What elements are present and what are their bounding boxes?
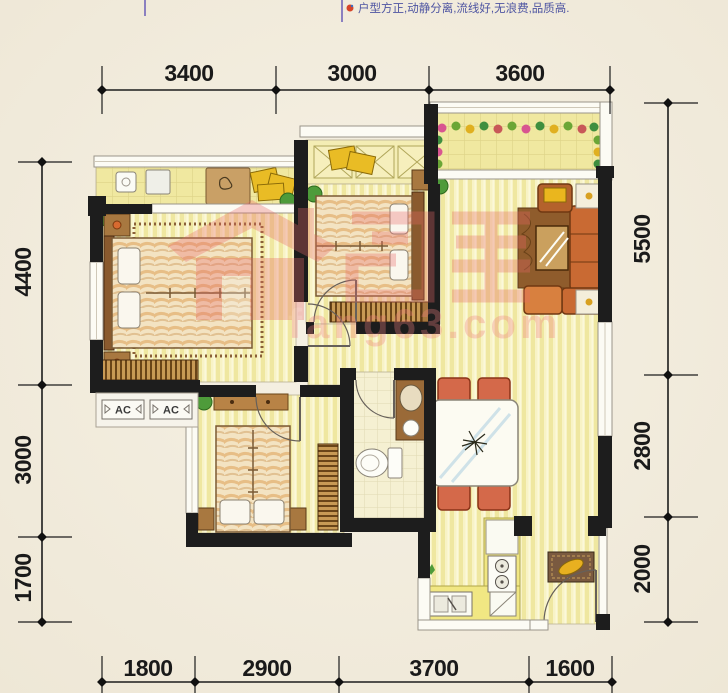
dim-label: 1700 (10, 553, 36, 602)
tagline-bullet-icon (351, 5, 353, 7)
window (300, 126, 432, 137)
dim-label: 2800 (629, 421, 655, 470)
living-balcony-floor (432, 112, 604, 172)
sink-bowl (452, 596, 466, 612)
washbasin (403, 420, 419, 436)
bedroom-bench (102, 360, 198, 380)
pillow (118, 292, 140, 328)
vanity-mirror (400, 385, 422, 411)
tagline-text: 户型方正,动静分离,流线好,无浪费,品质高. (358, 1, 569, 15)
dim-label: 3700 (409, 655, 458, 681)
floorplan-canvas: 户型方正,动静分离,流线好,无浪费,品质高. (0, 0, 728, 693)
window (152, 204, 302, 213)
foyer (548, 552, 594, 582)
dim-label: 1600 (545, 655, 594, 681)
gold-throw (544, 188, 566, 202)
ac-label-1: AC (115, 405, 131, 417)
wardrobe-tall (318, 444, 338, 530)
pillow (254, 500, 284, 524)
dresser-knob (230, 400, 234, 404)
dim-label: 2000 (629, 544, 655, 593)
nightstand (198, 508, 214, 530)
nightstand (290, 508, 306, 530)
dim-label: 3000 (10, 435, 36, 484)
dim-label: 3400 (164, 60, 213, 86)
dining-chair (478, 484, 510, 510)
sink-bowl (434, 596, 448, 612)
ac-label-2: AC (163, 405, 179, 417)
pillow (220, 500, 250, 524)
watermark-domain: fang63.com (288, 300, 561, 347)
nightstand-flower (113, 221, 121, 229)
burner-dot (500, 580, 503, 583)
window (418, 578, 430, 622)
flower-decor (586, 193, 593, 200)
pillow (118, 248, 140, 284)
laundry-cabinet (146, 170, 170, 194)
dresser-knob (266, 400, 270, 404)
dim-label: 3000 (327, 60, 376, 86)
floorplan-page: 户型方正,动静分离,流线好,无浪费,品质高. (0, 0, 728, 693)
ac-platform: AC AC (96, 393, 198, 427)
dim-label: 3600 (495, 60, 544, 86)
flower-decor (586, 299, 593, 306)
counter-cabinet (486, 520, 518, 554)
dim-label: 1800 (123, 655, 172, 681)
dim-label: 5500 (629, 214, 655, 263)
washing-machine (116, 172, 136, 192)
window (436, 170, 598, 179)
dim-label: 2900 (242, 655, 291, 681)
sofa-main (570, 206, 602, 290)
balcony-table (206, 168, 250, 204)
burner-dot (500, 564, 503, 567)
dim-label: 4400 (10, 247, 36, 296)
toilet-tank (388, 448, 402, 478)
dining-chair (438, 484, 470, 510)
wall-thin (599, 528, 607, 620)
window (418, 620, 530, 630)
wall-thin (530, 620, 548, 630)
